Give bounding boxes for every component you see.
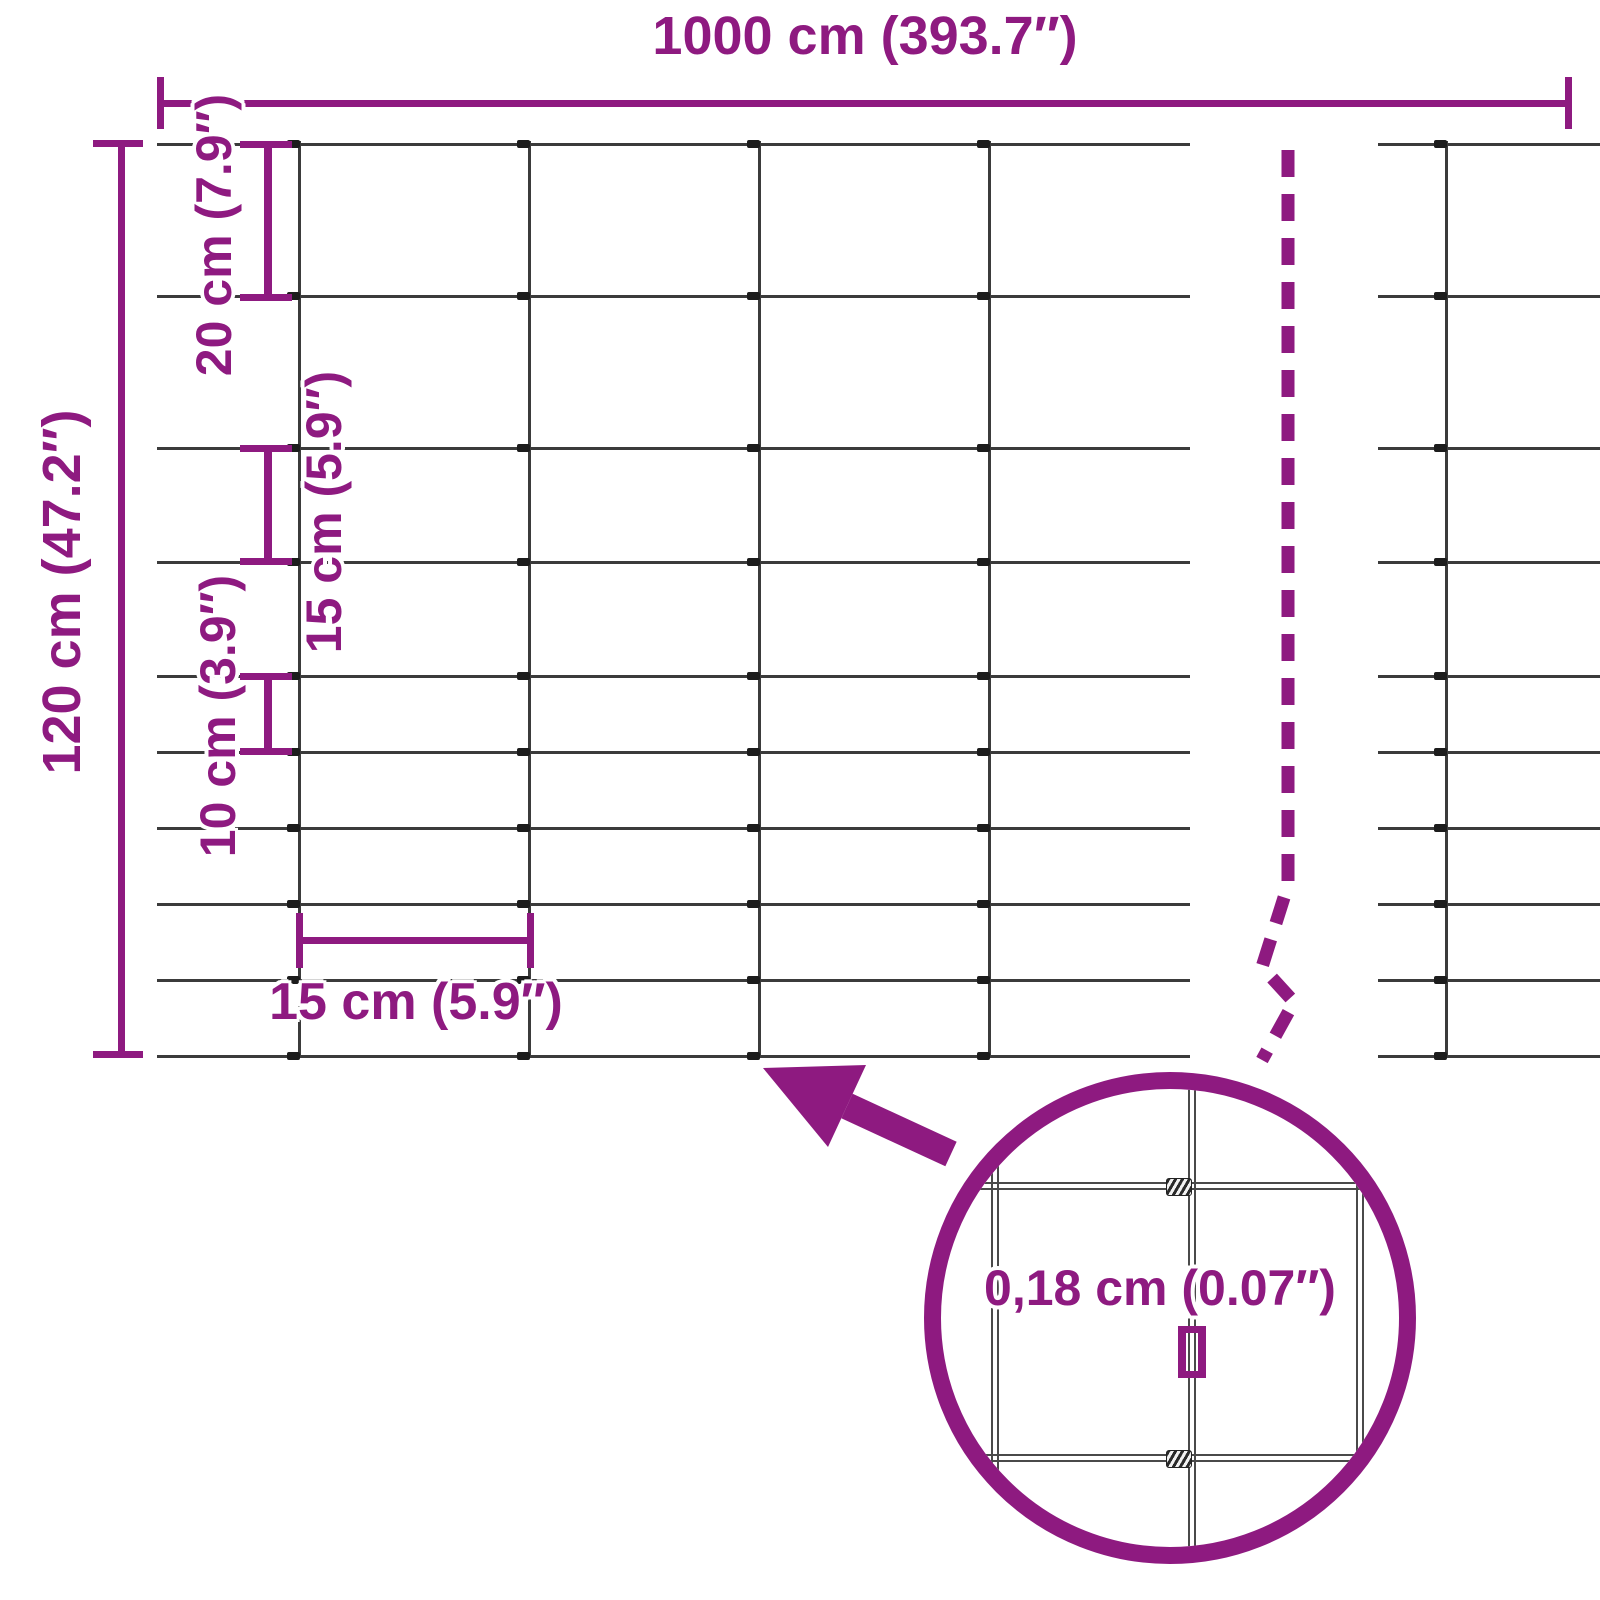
row-gap-low-bracket-tick (240, 748, 292, 755)
mesh-knot (1434, 900, 1447, 908)
mesh-horizontal-wire (1378, 903, 1600, 906)
mesh-knot (747, 444, 760, 452)
mesh-knot (977, 748, 990, 756)
top-dimension-right-tick (1565, 77, 1572, 129)
magnifier-arrow-head (763, 1065, 866, 1147)
mesh-knot (517, 672, 530, 680)
mesh-horizontal-wire (1378, 827, 1600, 830)
left-dimension-top-tick (93, 140, 143, 147)
mesh-horizontal-wire (157, 827, 1190, 830)
row-gap-top-bracket-tick (240, 294, 292, 301)
left-dimension-line (118, 140, 125, 1058)
mesh-knot (747, 292, 760, 300)
mesh-knot (287, 824, 300, 832)
thickness-marker-right-bar (1198, 1326, 1206, 1378)
mesh-knot (517, 558, 530, 566)
row-gap-top-bracket-tick (240, 141, 292, 148)
mesh-vertical-wire (988, 141, 991, 1057)
mesh-knot (517, 748, 530, 756)
row-gap-mid-bracket-bar (264, 445, 272, 565)
col-gap-bracket-tick (296, 913, 303, 968)
row-gap-top-label: 20 cm (7.9″) (185, 94, 243, 376)
row-gap-low-label: 10 cm (3.9″) (189, 575, 247, 857)
mesh-knot (517, 140, 530, 148)
mesh-knot (517, 292, 530, 300)
col-gap-bracket-bar (298, 937, 532, 944)
mesh-knot (747, 140, 760, 148)
mesh-knot (517, 444, 530, 452)
mesh-knot (1434, 140, 1447, 148)
mesh-knot (517, 1052, 530, 1060)
total-width-label: 1000 cm (393.7″) (652, 5, 1077, 67)
magnifier-circle (924, 1072, 1416, 1564)
wire-thickness-label: 0,18 cm (0.07″) (984, 1259, 1336, 1317)
mesh-knot (287, 1052, 300, 1060)
mesh-knot (977, 900, 990, 908)
mesh-horizontal-wire (1378, 447, 1600, 450)
mesh-knot (977, 976, 990, 984)
top-dimension-left-tick (157, 77, 164, 129)
mesh-knot (1434, 748, 1447, 756)
mesh-knot (747, 558, 760, 566)
mesh-vertical-wire (758, 141, 761, 1057)
row-gap-mid-bracket-tick (240, 558, 292, 565)
mesh-vertical-wire (1445, 141, 1448, 1057)
total-height-label: 120 cm (47.2″) (31, 409, 93, 774)
mesh-horizontal-wire (1378, 675, 1600, 678)
mesh-knot (517, 900, 530, 908)
mesh-knot (747, 976, 760, 984)
col-gap-bracket-tick (527, 913, 534, 968)
mesh-knot (287, 900, 300, 908)
mesh-horizontal-wire (1378, 561, 1600, 564)
mesh-knot (747, 672, 760, 680)
mesh-horizontal-wire (1378, 751, 1600, 754)
mesh-knot (747, 824, 760, 832)
mesh-horizontal-wire (1378, 143, 1600, 146)
mesh-horizontal-wire (157, 295, 1190, 298)
fence-dimension-diagram: 1000 cm (393.7″) 120 cm (47.2″) 20 cm (7… (0, 0, 1600, 1600)
mesh-horizontal-wire (1378, 979, 1600, 982)
mesh-horizontal-wire (1378, 1055, 1600, 1058)
break-line-dashed (1262, 150, 1294, 1060)
row-gap-low-bracket-tick (240, 673, 292, 680)
mesh-knot (1434, 558, 1447, 566)
mesh-knot (517, 824, 530, 832)
top-dimension-line (158, 100, 1572, 107)
mesh-knot (977, 292, 990, 300)
mesh-horizontal-wire (1378, 295, 1600, 298)
mesh-knot (977, 1052, 990, 1060)
mesh-horizontal-wire (157, 143, 1190, 146)
mesh-horizontal-wire (157, 903, 1190, 906)
mesh-knot (977, 444, 990, 452)
magnifier-arrow-shaft (847, 1106, 951, 1154)
mesh-knot (977, 672, 990, 680)
mesh-knot (977, 558, 990, 566)
mesh-knot (1434, 976, 1447, 984)
mesh-knot (977, 140, 990, 148)
col-gap-label: 15 cm (5.9″) (269, 972, 563, 1032)
mesh-knot (1434, 444, 1447, 452)
row-gap-mid-label: 15 cm (5.9″) (295, 371, 353, 653)
mesh-horizontal-wire (157, 1055, 1190, 1058)
mesh-knot (977, 824, 990, 832)
left-dimension-bottom-tick (93, 1051, 143, 1058)
mesh-knot (747, 1052, 760, 1060)
mesh-knot (1434, 1052, 1447, 1060)
mesh-knot (1434, 824, 1447, 832)
row-gap-mid-bracket-tick (240, 445, 292, 452)
mesh-horizontal-wire (157, 675, 1190, 678)
mesh-knot (747, 748, 760, 756)
thickness-marker-left-bar (1178, 1326, 1186, 1378)
row-gap-top-bracket-bar (264, 141, 272, 301)
mesh-horizontal-wire (157, 751, 1190, 754)
mesh-knot (1434, 672, 1447, 680)
row-gap-low-bracket-bar (264, 673, 272, 755)
mesh-knot (1434, 292, 1447, 300)
mesh-knot (747, 900, 760, 908)
